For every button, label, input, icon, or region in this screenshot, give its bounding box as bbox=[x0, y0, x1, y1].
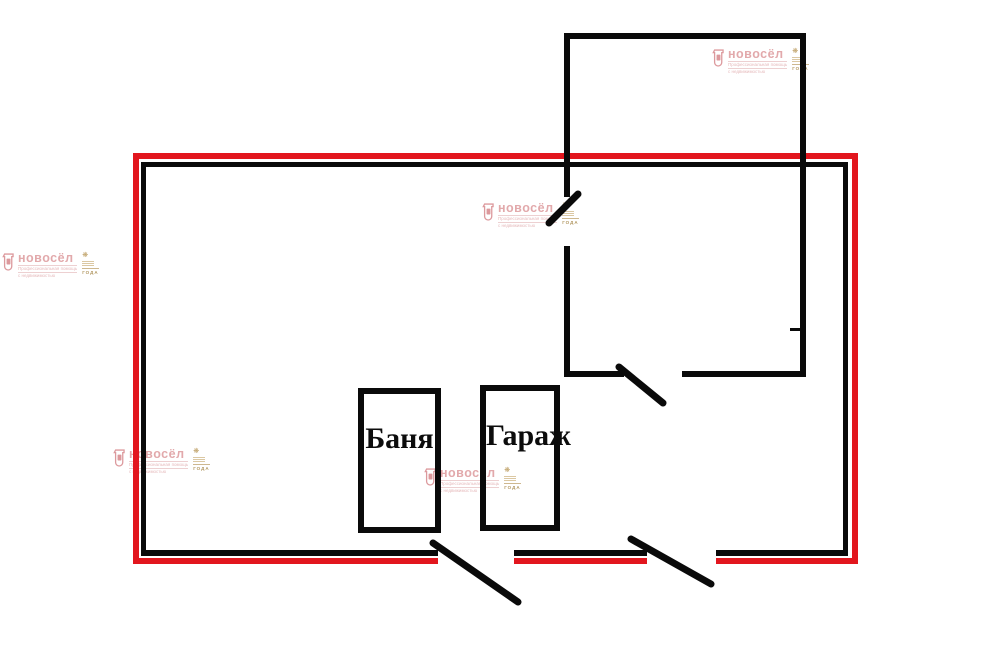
door-swing-room-bottom bbox=[619, 367, 663, 403]
door-swing-inner-wall bbox=[549, 194, 578, 223]
gate-swing-right bbox=[631, 539, 711, 584]
gate-swing-left bbox=[433, 543, 518, 602]
door-swing-overlay bbox=[0, 0, 1000, 667]
floor-plan-canvas: новосёл Профессиональная помощь с недвиж… bbox=[0, 0, 1000, 667]
